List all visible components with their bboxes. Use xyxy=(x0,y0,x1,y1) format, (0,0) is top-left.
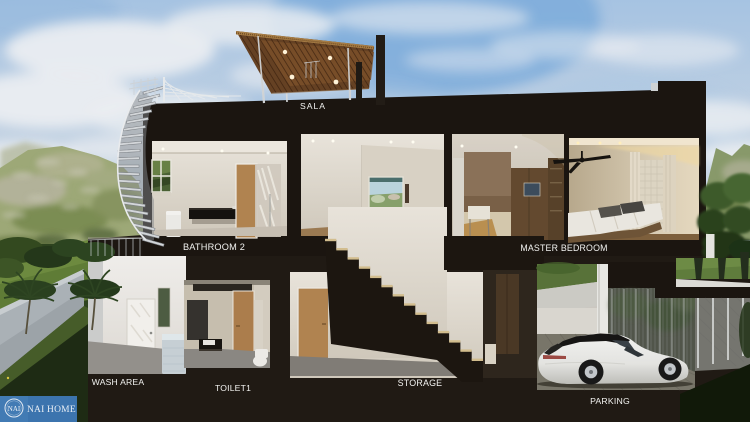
svg-text:MASTER BEDROOM: MASTER BEDROOM xyxy=(520,243,607,253)
svg-text:NAI: NAI xyxy=(8,405,21,413)
svg-text:NAI HOME: NAI HOME xyxy=(27,405,76,415)
svg-text:TOILET1: TOILET1 xyxy=(215,383,251,393)
svg-text:BATHROOM 2: BATHROOM 2 xyxy=(183,242,245,252)
svg-text:PARKING: PARKING xyxy=(590,396,630,406)
svg-text:WASH AREA: WASH AREA xyxy=(92,377,145,387)
svg-text:SALA: SALA xyxy=(300,101,326,111)
svg-text:STORAGE: STORAGE xyxy=(398,378,443,388)
